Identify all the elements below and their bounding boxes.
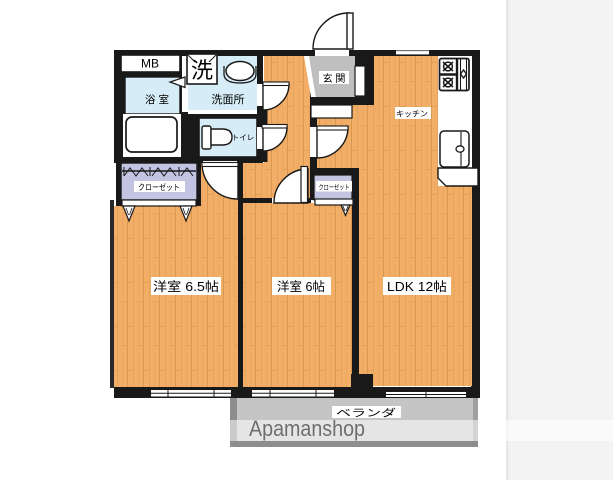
svg-text:洋室 6.5帖: 洋室 6.5帖 — [153, 279, 219, 294]
svg-text:洋室 6帖: 洋室 6帖 — [277, 279, 325, 294]
svg-text:キッチン: キッチン — [396, 110, 428, 119]
svg-text:トイレ: トイレ — [232, 133, 255, 142]
svg-text:洗: 洗 — [191, 58, 213, 83]
svg-text:玄 関: 玄 関 — [323, 72, 346, 85]
svg-text:洗面所: 洗面所 — [212, 93, 245, 106]
svg-text:Apamanshop: Apamanshop — [249, 416, 365, 441]
svg-text:クローゼット: クローゼット — [138, 182, 180, 192]
svg-text:MB: MB — [141, 57, 159, 71]
svg-text:浴 室: 浴 室 — [145, 93, 169, 106]
svg-text:クローゼット: クローゼット — [319, 183, 350, 192]
svg-text:LDK 12帖: LDK 12帖 — [387, 279, 447, 294]
